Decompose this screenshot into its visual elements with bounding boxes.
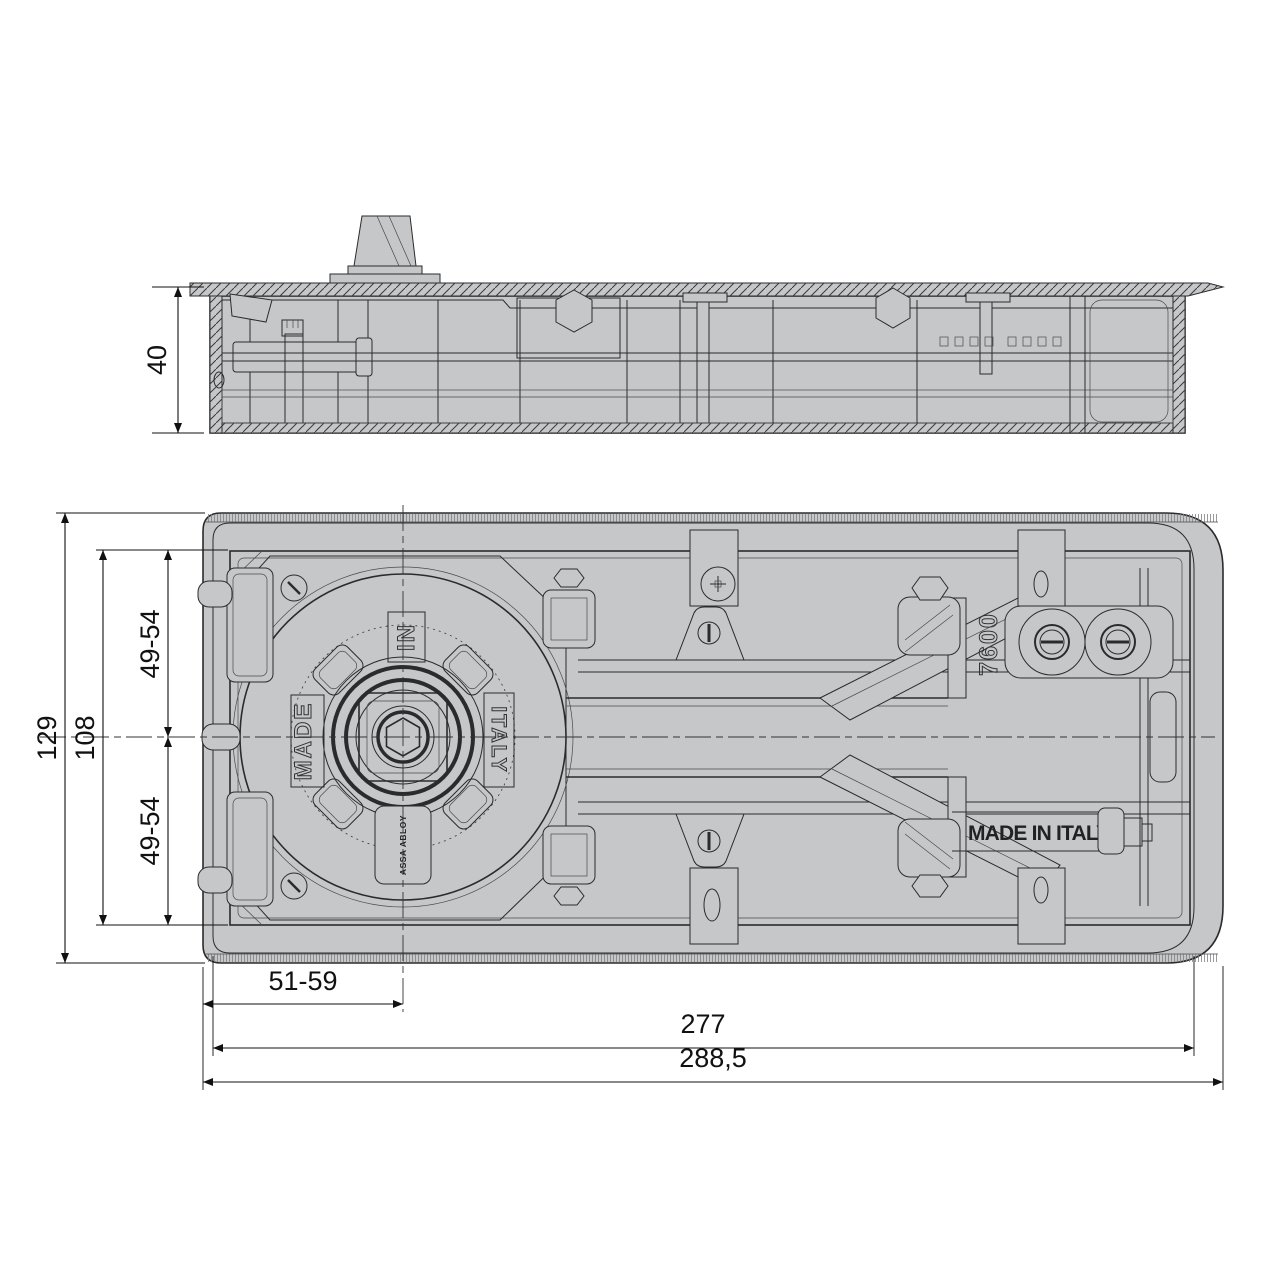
plan-view: MADE IN ITALY ASSA ABLOY xyxy=(32,505,1223,1090)
hex-bolt-spindle-top xyxy=(554,569,584,587)
dim-spindle-offset: 51-59 xyxy=(203,966,403,1012)
hex-bolt-top xyxy=(912,577,948,600)
valve-screw-side-1 xyxy=(683,293,727,302)
italy-text: ITALY xyxy=(487,706,510,773)
clamp-block-bottom-left xyxy=(227,792,273,906)
dim-label-277: 277 xyxy=(680,1009,725,1039)
made-in-italy-text: MADE IN ITALY xyxy=(968,822,1110,845)
knurl-top xyxy=(206,514,1218,522)
dim-axis-upper: 49-54 xyxy=(135,550,168,737)
dim-body-length: 277 xyxy=(213,956,1194,1056)
hex-bolt-spindle-bottom xyxy=(554,887,584,905)
in-text: IN xyxy=(393,623,420,651)
tab-bottom-right xyxy=(1018,868,1065,944)
knurl-bottom xyxy=(206,954,1218,962)
dim-label-51-59: 51-59 xyxy=(268,966,337,996)
floor-closer-drawing: 40 xyxy=(0,0,1280,1280)
model-text: 7600 xyxy=(975,612,1003,676)
dim-cover-height: 129 xyxy=(32,513,205,963)
dim-axis-lower: 49-54 xyxy=(135,737,168,925)
tab-bottom-center xyxy=(690,868,738,944)
clamp-block-top-left xyxy=(227,568,273,682)
hex-bolt-bottom xyxy=(912,875,948,897)
dim-side-height: 40 xyxy=(142,287,204,433)
dim-label-288-5: 288,5 xyxy=(679,1043,747,1073)
technical-drawing-page: 40 xyxy=(0,0,1280,1280)
rod-end-cap xyxy=(1098,808,1124,854)
side-view: 40 xyxy=(142,216,1223,433)
dim-label-40: 40 xyxy=(142,345,172,375)
dim-label-108: 108 xyxy=(70,715,100,760)
tab-top-right xyxy=(1018,530,1065,606)
dim-label-49-54-upper: 49-54 xyxy=(135,609,165,678)
dim-label-129: 129 xyxy=(32,715,62,760)
dim-label-49-54-lower: 49-54 xyxy=(135,796,165,865)
made-text: MADE xyxy=(290,702,317,781)
spindle-side xyxy=(330,216,440,283)
valve-screw-side-2 xyxy=(966,293,1010,302)
